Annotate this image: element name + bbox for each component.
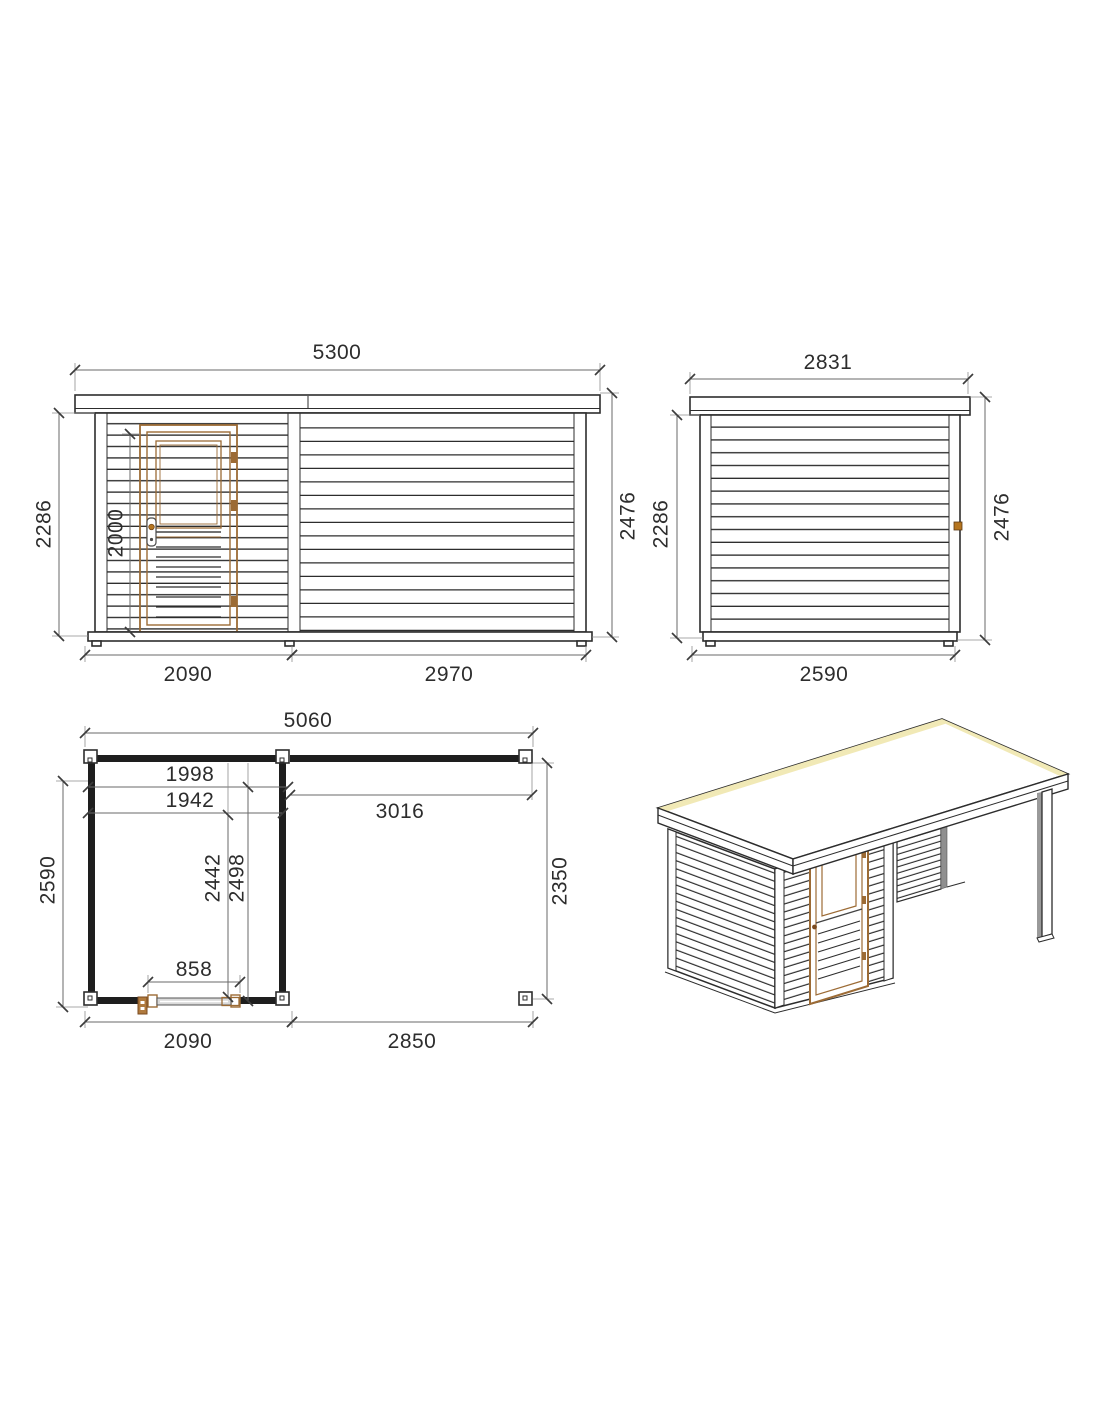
- plan-middle-wall: [279, 762, 286, 995]
- dim-front-total-width: 5300: [313, 341, 362, 364]
- iso-front-corner-trim-right: [884, 833, 893, 981]
- dim-side-wall-height: 2286: [650, 500, 673, 549]
- iso-door-handle: [812, 925, 817, 930]
- technical-drawing: 5300 2286 2000 2476 2090 2970: [0, 0, 1100, 1422]
- dim-plan-total-width: 5060: [284, 709, 333, 732]
- side-door-handle: [954, 522, 962, 530]
- side-base: [703, 632, 957, 641]
- dim-plan-cabin-width: 2090: [164, 1030, 213, 1053]
- dim-front-annex-width: 2970: [425, 663, 474, 686]
- plan-posts: [84, 750, 532, 1005]
- dim-front-wall-height: 2286: [33, 500, 56, 549]
- dim-front-door-height: 2000: [105, 509, 128, 558]
- dim-side-total-width: 2831: [804, 351, 853, 374]
- page: 5300 2286 2000 2476 2090 2970: [0, 0, 1100, 1422]
- iso-front-corner-trim-left: [775, 866, 784, 1008]
- side-elevation-view: 2831 2286 2476 2590: [650, 351, 1014, 686]
- side-siding: [711, 416, 949, 631]
- iso-pergola-post: [1037, 789, 1054, 942]
- dim-plan-cabin-depth: 2590: [37, 856, 60, 905]
- isometric-view: [658, 719, 1068, 1013]
- dim-plan-inner-width-b: 1942: [166, 789, 215, 812]
- dim-plan-inner-depth-a: 2442: [202, 854, 225, 903]
- dim-plan-inner-depth-b: 2498: [226, 854, 249, 903]
- plan-back-wall: [90, 755, 282, 762]
- front-roof: [75, 395, 600, 413]
- front-base: [88, 632, 592, 641]
- dim-plan-annex-width: 2850: [388, 1030, 437, 1053]
- dim-front-cabin-width: 2090: [164, 663, 213, 686]
- dim-plan-annex-depth: 2350: [549, 857, 572, 906]
- plan-door-handle: [138, 997, 147, 1014]
- iso-left-corner-trim: [668, 829, 676, 971]
- dim-plan-annex-inner-width: 3016: [376, 800, 425, 823]
- plan-door: [138, 995, 240, 1014]
- front-annex-siding: [300, 416, 574, 631]
- plan-left-wall: [88, 762, 95, 995]
- dim-plan-door-width: 858: [176, 958, 213, 981]
- side-roof: [690, 397, 970, 415]
- dim-side-overall-height: 2476: [991, 493, 1014, 542]
- plan-pergola-beam: [290, 755, 526, 762]
- dim-plan-inner-width-a: 1998: [166, 763, 215, 786]
- dim-side-base-depth: 2590: [800, 663, 849, 686]
- door-handle: [147, 518, 156, 546]
- dim-front-overall-height: 2476: [617, 492, 640, 541]
- floor-plan-view: 5060 1998 1942 3016 2590 2442 2498 2350: [37, 709, 572, 1053]
- front-cabin-siding: [107, 414, 288, 631]
- plan-front-wall-right: [240, 997, 280, 1004]
- front-elevation-view: 5300 2286 2000 2476 2090 2970: [33, 341, 640, 686]
